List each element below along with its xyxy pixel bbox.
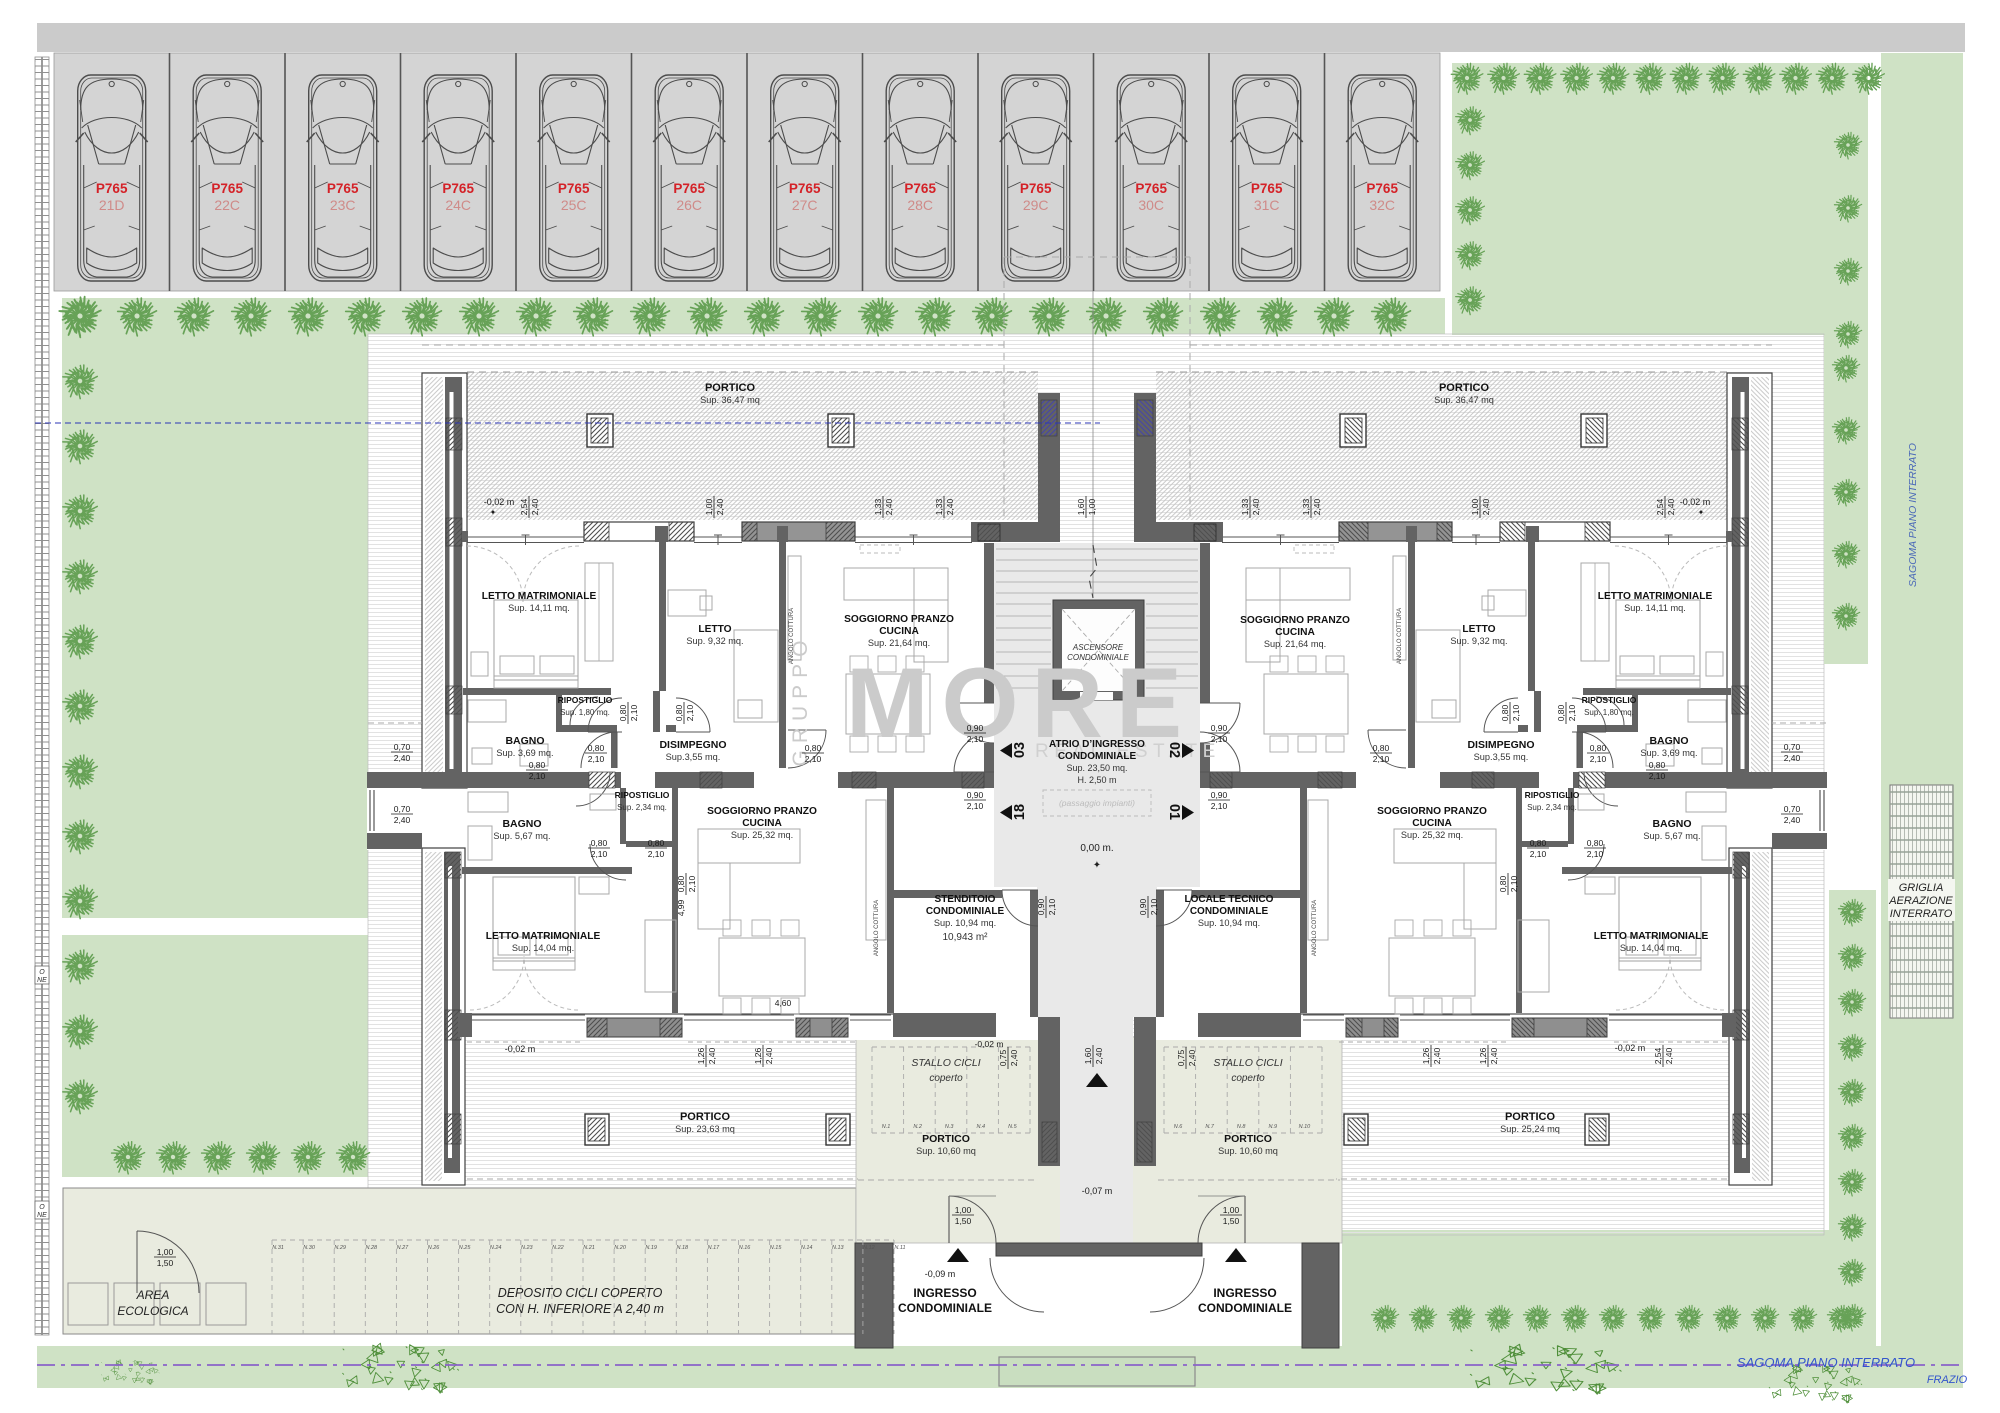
svg-text:N.11: N.11 <box>894 1245 905 1251</box>
svg-text:P765: P765 <box>211 181 243 196</box>
svg-text:29C: 29C <box>1023 197 1049 213</box>
svg-text:CUCINA: CUCINA <box>1412 818 1452 829</box>
svg-text:LETTO MATRIMONIALE: LETTO MATRIMONIALE <box>486 931 601 942</box>
svg-text:INGRESSO: INGRESSO <box>913 1286 976 1300</box>
svg-text:0,80: 0,80 <box>648 838 665 848</box>
svg-text:2,10: 2,10 <box>1567 704 1577 721</box>
svg-text:2,40: 2,40 <box>394 815 411 825</box>
svg-text:ATRIO D’INGRESSO: ATRIO D’INGRESSO <box>1049 739 1145 750</box>
svg-text:2,40: 2,40 <box>1312 498 1322 515</box>
svg-text:LETTO MATRIMONIALE: LETTO MATRIMONIALE <box>482 591 597 602</box>
svg-text:0,90: 0,90 <box>1211 790 1228 800</box>
svg-text:2,40: 2,40 <box>715 498 725 515</box>
svg-text:2,40: 2,40 <box>1187 1049 1197 1066</box>
svg-text:0,80: 0,80 <box>529 760 546 770</box>
svg-text:DISIMPEGNO: DISIMPEGNO <box>659 739 726 751</box>
svg-text:2,10: 2,10 <box>687 875 697 892</box>
svg-text:Sup. 14,04 mq.: Sup. 14,04 mq. <box>512 943 574 953</box>
svg-text:N.17: N.17 <box>708 1245 721 1251</box>
svg-text:0,80: 0,80 <box>1587 838 1604 848</box>
svg-text:-0,07 m: -0,07 m <box>1082 1186 1113 1196</box>
svg-text:Sup. 25,24 mq: Sup. 25,24 mq <box>1500 1124 1560 1134</box>
svg-text:ANGOLO COTTURA: ANGOLO COTTURA <box>874 900 880 956</box>
svg-text:NE: NE <box>37 977 47 984</box>
svg-text:0,80: 0,80 <box>676 875 686 892</box>
svg-text:LETTO MATRIMONIALE: LETTO MATRIMONIALE <box>1598 591 1713 602</box>
svg-text:O: O <box>39 1204 45 1211</box>
svg-text:LETTO: LETTO <box>698 624 731 635</box>
svg-text:N.28: N.28 <box>365 1245 378 1251</box>
svg-text:CONDOMINIALE: CONDOMINIALE <box>1058 751 1137 762</box>
svg-text:Sup. 2,34 mq.: Sup. 2,34 mq. <box>617 803 667 812</box>
svg-text:1,26: 1,26 <box>753 1047 763 1064</box>
svg-text:P765: P765 <box>1366 181 1398 196</box>
svg-text:LOCALE TECNICO: LOCALE TECNICO <box>1185 894 1274 905</box>
svg-text:Sup. 3,69 mq.: Sup. 3,69 mq. <box>496 748 553 758</box>
svg-text:1,00: 1,00 <box>1087 498 1097 515</box>
svg-text:0,90: 0,90 <box>1036 898 1046 915</box>
svg-text:1,50: 1,50 <box>955 1216 972 1226</box>
svg-text:21D: 21D <box>99 197 125 213</box>
svg-text:ASCENSORE: ASCENSORE <box>1072 643 1124 652</box>
svg-text:PORTICO: PORTICO <box>705 382 756 394</box>
svg-text:N.22: N.22 <box>552 1245 564 1251</box>
svg-text:SOGGIORNO PRANZO: SOGGIORNO PRANZO <box>1377 806 1487 817</box>
svg-text:2,10: 2,10 <box>805 754 822 764</box>
svg-text:✦: ✦ <box>1093 860 1101 871</box>
svg-text:N.27: N.27 <box>397 1245 410 1251</box>
svg-text:N.13: N.13 <box>832 1245 845 1251</box>
svg-text:0,80: 0,80 <box>1500 704 1510 721</box>
svg-text:N.24: N.24 <box>490 1245 502 1251</box>
svg-text:2,10: 2,10 <box>591 849 608 859</box>
svg-text:28C: 28C <box>907 197 933 213</box>
svg-text:0,70: 0,70 <box>1784 804 1801 814</box>
svg-text:2,40: 2,40 <box>1009 1049 1019 1066</box>
svg-text:2,10: 2,10 <box>588 754 605 764</box>
svg-text:Sup.3,55 mq.: Sup.3,55 mq. <box>666 752 721 762</box>
svg-text:02: 02 <box>1166 742 1182 758</box>
svg-text:Sup.3,55 mq.: Sup.3,55 mq. <box>1474 752 1529 762</box>
svg-text:01: 01 <box>1166 804 1182 820</box>
svg-text:2,40: 2,40 <box>1481 498 1491 515</box>
svg-text:RIPOSTIGLIO: RIPOSTIGLIO <box>1525 790 1580 800</box>
svg-text:1,00: 1,00 <box>157 1247 174 1257</box>
svg-text:0,80: 0,80 <box>1530 838 1547 848</box>
svg-text:STALLO CICLI: STALLO CICLI <box>911 1057 980 1069</box>
svg-text:2,10: 2,10 <box>629 704 639 721</box>
svg-text:2,10: 2,10 <box>967 734 984 744</box>
svg-text:STALLO CICLI: STALLO CICLI <box>1213 1057 1282 1069</box>
svg-text:2,54: 2,54 <box>1655 498 1665 515</box>
svg-text:N.3: N.3 <box>945 1124 955 1130</box>
svg-text:SAGOMA PIANO INTERRATO: SAGOMA PIANO INTERRATO <box>1907 443 1919 587</box>
svg-text:2,10: 2,10 <box>529 771 546 781</box>
svg-text:N.6: N.6 <box>1174 1124 1184 1130</box>
svg-text:N.4: N.4 <box>977 1124 986 1130</box>
svg-text:31C: 31C <box>1254 197 1280 213</box>
svg-text:P765: P765 <box>789 181 821 196</box>
svg-text:N.30: N.30 <box>303 1245 316 1251</box>
svg-text:0,00 m.: 0,00 m. <box>1080 843 1113 854</box>
svg-text:AREA: AREA <box>136 1288 170 1302</box>
svg-text:BAGNO: BAGNO <box>505 735 544 747</box>
svg-text:PORTICO: PORTICO <box>1505 1111 1556 1123</box>
svg-text:✦: ✦ <box>490 508 497 517</box>
svg-text:2,10: 2,10 <box>1649 771 1666 781</box>
svg-text:CON H. INFERIORE A 2,40 m: CON H. INFERIORE A 2,40 m <box>496 1302 664 1316</box>
svg-text:Sup. 25,32 mq.: Sup. 25,32 mq. <box>1401 830 1463 840</box>
svg-text:22C: 22C <box>214 197 240 213</box>
svg-text:1,33: 1,33 <box>1301 498 1311 515</box>
svg-text:N.2: N.2 <box>913 1124 922 1130</box>
svg-text:0,80: 0,80 <box>588 743 605 753</box>
svg-text:N.31: N.31 <box>272 1245 284 1251</box>
svg-text:N.12: N.12 <box>863 1245 875 1251</box>
svg-text:P765: P765 <box>673 181 705 196</box>
svg-text:N.14: N.14 <box>801 1245 813 1251</box>
svg-text:1,00: 1,00 <box>955 1205 972 1215</box>
svg-text:INTERRATO: INTERRATO <box>1890 908 1953 920</box>
svg-text:4,99: 4,99 <box>676 899 686 916</box>
svg-text:2,40: 2,40 <box>764 1047 774 1064</box>
svg-text:N.15: N.15 <box>770 1245 783 1251</box>
svg-text:0,70: 0,70 <box>394 804 411 814</box>
svg-text:(passaggio impianti): (passaggio impianti) <box>1059 798 1135 808</box>
svg-text:N.21: N.21 <box>583 1245 595 1251</box>
svg-text:2,10: 2,10 <box>1047 898 1057 915</box>
svg-text:2,10: 2,10 <box>967 801 984 811</box>
svg-text:NE: NE <box>37 1212 47 1219</box>
svg-text:18: 18 <box>1012 804 1028 820</box>
svg-text:2,40: 2,40 <box>1432 1047 1442 1064</box>
svg-text:RIPOSTIGLIO: RIPOSTIGLIO <box>615 790 670 800</box>
svg-text:26C: 26C <box>676 197 702 213</box>
svg-text:INGRESSO: INGRESSO <box>1213 1286 1276 1300</box>
svg-text:N.1: N.1 <box>882 1124 891 1130</box>
svg-text:Sup. 21,64 mq.: Sup. 21,64 mq. <box>1264 639 1326 649</box>
svg-text:Sup. 14,11 mq.: Sup. 14,11 mq. <box>508 603 570 613</box>
svg-text:ANGOLO COTTURA: ANGOLO COTTURA <box>1397 608 1403 664</box>
svg-text:2,40: 2,40 <box>1489 1047 1499 1064</box>
svg-text:2,10: 2,10 <box>1511 704 1521 721</box>
svg-text:1,33: 1,33 <box>1240 498 1250 515</box>
svg-text:P765: P765 <box>904 181 936 196</box>
svg-text:0,80: 0,80 <box>1373 743 1390 753</box>
svg-text:-0,02 m: -0,02 m <box>975 1039 1004 1049</box>
svg-text:coperto: coperto <box>929 1073 963 1084</box>
svg-text:O: O <box>39 969 45 976</box>
svg-text:PORTICO: PORTICO <box>922 1133 970 1145</box>
svg-text:P765: P765 <box>96 181 128 196</box>
svg-text:Sup. 1,80 mq.: Sup. 1,80 mq. <box>1584 708 1634 717</box>
svg-text:0,90: 0,90 <box>1138 898 1148 915</box>
svg-text:CONDOMINIALE: CONDOMINIALE <box>1198 1301 1292 1315</box>
svg-text:2,40: 2,40 <box>707 1047 717 1064</box>
svg-text:Sup. 23,63 mq: Sup. 23,63 mq <box>675 1124 735 1134</box>
svg-text:H. 2,50 m: H. 2,50 m <box>1077 775 1116 785</box>
svg-text:SOGGIORNO PRANZO: SOGGIORNO PRANZO <box>844 614 954 625</box>
svg-text:Sup. 3,69 mq.: Sup. 3,69 mq. <box>1640 748 1697 758</box>
svg-text:1,60: 1,60 <box>1076 498 1086 515</box>
svg-text:1,26: 1,26 <box>1421 1047 1431 1064</box>
svg-text:32C: 32C <box>1369 197 1395 213</box>
svg-text:N.16: N.16 <box>739 1245 752 1251</box>
svg-text:RIPOSTIGLIO: RIPOSTIGLIO <box>558 695 613 705</box>
svg-text:Sup. 2,34 mq.: Sup. 2,34 mq. <box>1527 803 1577 812</box>
svg-text:0,80: 0,80 <box>1556 704 1566 721</box>
svg-text:0,90: 0,90 <box>967 790 984 800</box>
svg-text:CONDOMINIALE: CONDOMINIALE <box>898 1301 992 1315</box>
svg-text:SOGGIORNO PRANZO: SOGGIORNO PRANZO <box>707 806 817 817</box>
svg-text:P765: P765 <box>1251 181 1283 196</box>
svg-text:2,54: 2,54 <box>1653 1047 1663 1064</box>
svg-text:1,60: 1,60 <box>1083 1047 1093 1064</box>
svg-text:Sup. 9,32 mq.: Sup. 9,32 mq. <box>686 636 743 646</box>
svg-text:Sup. 36,47 mq: Sup. 36,47 mq <box>700 395 760 405</box>
svg-text:23C: 23C <box>330 197 356 213</box>
svg-text:N.23: N.23 <box>521 1245 534 1251</box>
svg-text:1,00: 1,00 <box>704 498 714 515</box>
svg-text:PORTICO: PORTICO <box>1224 1133 1272 1145</box>
svg-text:2,10: 2,10 <box>1149 898 1159 915</box>
svg-text:2,10: 2,10 <box>685 704 695 721</box>
svg-text:-0,02 m: -0,02 m <box>1680 497 1711 507</box>
svg-text:N.5: N.5 <box>1008 1124 1018 1130</box>
svg-text:FRAZIO: FRAZIO <box>1927 1374 1968 1386</box>
svg-text:0,70: 0,70 <box>1784 742 1801 752</box>
svg-text:0,80: 0,80 <box>618 704 628 721</box>
svg-text:2,40: 2,40 <box>1666 498 1676 515</box>
svg-text:Sup. 1,80 mq.: Sup. 1,80 mq. <box>560 708 610 717</box>
svg-text:Sup. 36,47 mq: Sup. 36,47 mq <box>1434 395 1494 405</box>
svg-text:0,75: 0,75 <box>998 1049 1008 1066</box>
svg-text:0,75: 0,75 <box>1176 1049 1186 1066</box>
svg-text:SAGOMA PIANO INTERRATO: SAGOMA PIANO INTERRATO <box>1737 1355 1915 1370</box>
svg-text:P765: P765 <box>1135 181 1167 196</box>
svg-text:10,943 m²: 10,943 m² <box>942 932 988 943</box>
svg-text:N.8: N.8 <box>1237 1124 1247 1130</box>
svg-text:CUCINA: CUCINA <box>1275 627 1315 638</box>
svg-text:-0,02 m: -0,02 m <box>484 497 515 507</box>
svg-text:0,80: 0,80 <box>674 704 684 721</box>
svg-text:1,26: 1,26 <box>696 1047 706 1064</box>
svg-text:1,33: 1,33 <box>934 498 944 515</box>
svg-text:0,70: 0,70 <box>394 742 411 752</box>
svg-text:1,50: 1,50 <box>157 1258 174 1268</box>
svg-text:25C: 25C <box>561 197 587 213</box>
svg-text:2,10: 2,10 <box>648 849 665 859</box>
svg-text:-0,02 m: -0,02 m <box>1615 1043 1646 1053</box>
svg-text:Sup. 10,94 mq.: Sup. 10,94 mq. <box>934 918 996 928</box>
svg-text:CUCINA: CUCINA <box>879 626 919 637</box>
svg-text:Sup. 5,67 mq.: Sup. 5,67 mq. <box>493 831 550 841</box>
svg-text:2,10: 2,10 <box>1530 849 1547 859</box>
svg-text:N.9: N.9 <box>1269 1124 1278 1130</box>
svg-text:2,40: 2,40 <box>530 498 540 515</box>
svg-text:Sup. 23,50 mq.: Sup. 23,50 mq. <box>1066 763 1127 773</box>
svg-text:1,00: 1,00 <box>1470 498 1480 515</box>
svg-text:03: 03 <box>1012 742 1028 758</box>
svg-text:coperto: coperto <box>1231 1073 1265 1084</box>
svg-text:P765: P765 <box>558 181 590 196</box>
svg-text:SOGGIORNO PRANZO: SOGGIORNO PRANZO <box>1240 615 1350 626</box>
svg-text:2,40: 2,40 <box>394 753 411 763</box>
svg-text:BAGNO: BAGNO <box>1652 818 1691 830</box>
svg-text:Sup. 10,60 mq: Sup. 10,60 mq <box>1218 1146 1278 1156</box>
svg-text:RIPOSTIGLIO: RIPOSTIGLIO <box>1582 695 1637 705</box>
svg-text:0,80: 0,80 <box>1649 760 1666 770</box>
svg-text:AERAZIONE: AERAZIONE <box>1888 895 1953 907</box>
svg-text:1,33: 1,33 <box>873 498 883 515</box>
svg-text:Sup. 5,67 mq.: Sup. 5,67 mq. <box>1643 831 1700 841</box>
svg-text:2,54: 2,54 <box>519 498 529 515</box>
svg-text:-0,09 m: -0,09 m <box>925 1269 956 1279</box>
svg-text:0,90: 0,90 <box>967 723 984 733</box>
svg-text:LETTO MATRIMONIALE: LETTO MATRIMONIALE <box>1594 931 1709 942</box>
svg-text:PORTICO: PORTICO <box>1439 382 1490 394</box>
svg-text:CONDOMINIALE: CONDOMINIALE <box>926 906 1005 917</box>
svg-text:ECOLOGICA: ECOLOGICA <box>117 1304 188 1318</box>
svg-text:1,26: 1,26 <box>1478 1047 1488 1064</box>
svg-text:2,10: 2,10 <box>1590 754 1607 764</box>
svg-text:BAGNO: BAGNO <box>1649 735 1688 747</box>
svg-text:Sup. 14,11 mq.: Sup. 14,11 mq. <box>1624 603 1686 613</box>
svg-text:Sup. 10,60 mq: Sup. 10,60 mq <box>916 1146 976 1156</box>
svg-text:2,40: 2,40 <box>945 498 955 515</box>
svg-text:N.29: N.29 <box>334 1245 346 1251</box>
svg-text:PORTICO: PORTICO <box>680 1111 731 1123</box>
svg-text:ANGOLO COTTURA: ANGOLO COTTURA <box>789 608 795 664</box>
svg-text:P765: P765 <box>1020 181 1052 196</box>
svg-text:0,80: 0,80 <box>1590 743 1607 753</box>
svg-text:0,80: 0,80 <box>591 838 608 848</box>
svg-text:2,40: 2,40 <box>1784 815 1801 825</box>
svg-text:DISIMPEGNO: DISIMPEGNO <box>1467 739 1534 751</box>
svg-text:30C: 30C <box>1138 197 1164 213</box>
svg-text:0,80: 0,80 <box>805 743 822 753</box>
svg-text:2,10: 2,10 <box>1587 849 1604 859</box>
svg-text:N.7: N.7 <box>1205 1124 1215 1130</box>
svg-text:27C: 27C <box>792 197 818 213</box>
svg-text:STENDITOIO: STENDITOIO <box>935 894 996 905</box>
svg-text:1,50: 1,50 <box>1223 1216 1240 1226</box>
svg-text:P765: P765 <box>442 181 474 196</box>
svg-text:N.18: N.18 <box>676 1245 689 1251</box>
svg-text:CUCINA: CUCINA <box>742 818 782 829</box>
svg-text:4,60: 4,60 <box>775 998 792 1008</box>
svg-text:2,40: 2,40 <box>1094 1047 1104 1064</box>
svg-text:✦: ✦ <box>1698 508 1705 517</box>
svg-text:BAGNO: BAGNO <box>502 818 541 830</box>
svg-text:N.25: N.25 <box>459 1245 472 1251</box>
svg-text:0,80: 0,80 <box>1498 875 1508 892</box>
svg-text:2,10: 2,10 <box>1509 875 1519 892</box>
svg-text:N.20: N.20 <box>614 1245 627 1251</box>
svg-text:N.10: N.10 <box>1299 1124 1312 1130</box>
svg-text:CONDOMINIALE: CONDOMINIALE <box>1067 653 1129 662</box>
svg-text:ANGOLO COTTURA: ANGOLO COTTURA <box>1312 900 1318 956</box>
svg-text:1,00: 1,00 <box>1223 1205 1240 1215</box>
svg-text:CONDOMINIALE: CONDOMINIALE <box>1190 906 1269 917</box>
svg-text:2,40: 2,40 <box>1664 1047 1674 1064</box>
svg-text:Sup. 21,64 mq.: Sup. 21,64 mq. <box>868 638 930 648</box>
svg-text:2,40: 2,40 <box>884 498 894 515</box>
svg-text:2,40: 2,40 <box>1251 498 1261 515</box>
svg-text:GRIGLIA: GRIGLIA <box>1899 882 1944 894</box>
svg-text:Sup. 9,32 mq.: Sup. 9,32 mq. <box>1450 636 1507 646</box>
svg-text:N.19: N.19 <box>645 1245 657 1251</box>
svg-text:2,10: 2,10 <box>1373 754 1390 764</box>
svg-text:DEPOSITO CICLI COPERTO: DEPOSITO CICLI COPERTO <box>498 1286 663 1300</box>
svg-text:Sup. 25,32 mq.: Sup. 25,32 mq. <box>731 830 793 840</box>
svg-text:Sup. 10,94 mq.: Sup. 10,94 mq. <box>1198 918 1260 928</box>
svg-text:0,90: 0,90 <box>1211 723 1228 733</box>
svg-text:Sup. 14,04 mq.: Sup. 14,04 mq. <box>1620 943 1682 953</box>
svg-text:24C: 24C <box>445 197 471 213</box>
svg-text:2,10: 2,10 <box>1211 801 1228 811</box>
svg-text:N.26: N.26 <box>428 1245 441 1251</box>
svg-text:P765: P765 <box>327 181 359 196</box>
svg-text:2,40: 2,40 <box>1784 753 1801 763</box>
svg-text:LETTO: LETTO <box>1462 624 1495 635</box>
svg-text:2,10: 2,10 <box>1211 734 1228 744</box>
svg-text:-0,02 m: -0,02 m <box>505 1044 536 1054</box>
